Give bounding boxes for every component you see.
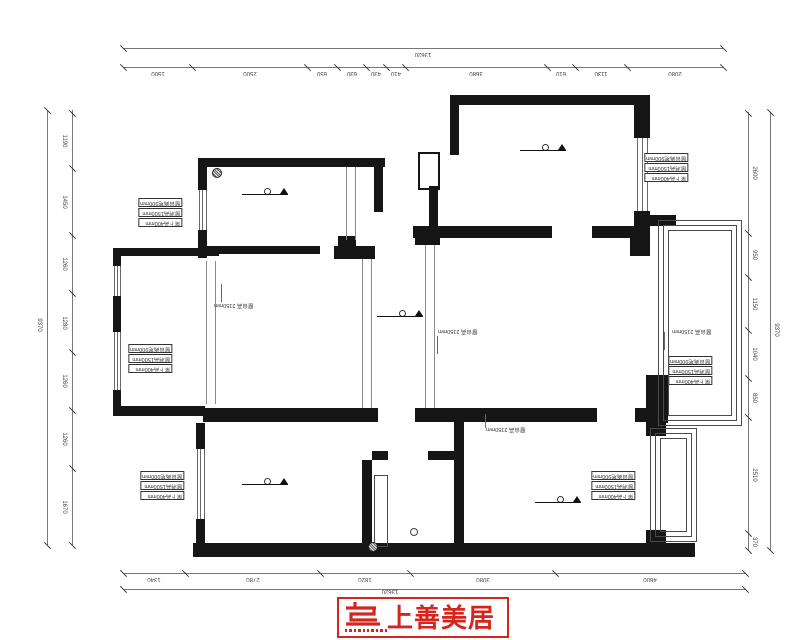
wall [196, 423, 205, 449]
dimension-value: 650 [308, 70, 336, 76]
window-spec-annotation: 窗台离地900mm窗洞高1500mm梁下高400mm [644, 153, 688, 183]
dimension-value: 950 [751, 241, 757, 269]
window [206, 190, 207, 230]
sill-height-annotation: 窗台高 2150mm [486, 426, 525, 434]
wall [415, 408, 597, 422]
wall [415, 228, 440, 245]
window [197, 449, 198, 519]
level-marker [533, 492, 585, 516]
floor-drain-icon [410, 528, 418, 536]
window [114, 332, 115, 390]
leader-line [437, 336, 438, 354]
dimension-value: 4600 [636, 576, 664, 582]
dimension-value: 850 [751, 384, 757, 412]
logo-s-mark-icon [344, 602, 384, 628]
sill-height-annotation: 窗台高 2150mm [438, 328, 477, 336]
dimension-value: 9370 [36, 311, 42, 339]
dimension-value: 3080 [469, 576, 497, 582]
window-spec-annotation: 窗台离地900mm窗洞高1500mm梁下高400mm [591, 471, 635, 501]
wall [454, 420, 464, 553]
company-logo: 上善美居 [337, 597, 509, 638]
window [642, 138, 643, 211]
partition-line [215, 261, 216, 404]
leader-line [485, 414, 486, 428]
partition-line [434, 245, 435, 408]
logo-dotted-row [345, 629, 387, 633]
leader-line [664, 332, 665, 350]
wall [203, 408, 378, 422]
wall [198, 158, 385, 167]
partition-line [355, 167, 356, 240]
dimension-value: 1150 [751, 290, 757, 318]
window [120, 266, 121, 296]
dimension-value: 1130 [587, 70, 615, 76]
dimension-value: 2080 [661, 70, 689, 76]
window [117, 266, 118, 296]
dimension-line [770, 112, 771, 550]
dimension-value: 1040 [751, 340, 757, 368]
wall [113, 296, 121, 332]
dimension-value: 3680 [462, 70, 490, 76]
window-spec-annotation: 窗台离地900mm窗洞高1500mm梁下高400mm [140, 471, 184, 501]
dimension-value: 1820 [351, 576, 379, 582]
dimension-value: 1260 [61, 425, 67, 453]
wall [428, 451, 456, 460]
dimension-value: 370 [751, 528, 757, 556]
dimension-value: 2780 [239, 576, 267, 582]
sill-height-annotation: 窗台高 2150mm [672, 328, 711, 336]
floor-plan-drawing: 1362015002500650630430410368061011302080… [0, 0, 800, 640]
dimension-value: 1500 [144, 70, 172, 76]
balcony-frame [668, 230, 732, 416]
level-line [535, 502, 581, 503]
window [120, 332, 121, 390]
partition-line [346, 167, 347, 240]
dimension-value: 610 [547, 70, 575, 76]
wall [362, 460, 372, 553]
survey-point-icon [368, 542, 378, 552]
wall [113, 248, 121, 266]
dimension-value: 2510 [751, 461, 757, 489]
window [204, 449, 205, 519]
partition-line [206, 261, 207, 404]
window-spec-annotation: 窗台离地900mm窗洞高1500mm梁下高400mm [138, 198, 182, 228]
dimension-line [123, 67, 723, 68]
level-line [242, 194, 288, 195]
wall [193, 543, 695, 557]
dimension-value: 1670 [61, 493, 67, 521]
survey-point-icon [212, 168, 222, 178]
dimension-value: 1190 [61, 127, 67, 155]
level-marker [518, 140, 570, 164]
partition-line [371, 259, 372, 408]
dimension-line [123, 573, 745, 574]
level-line [377, 316, 423, 317]
dimension-value: 410 [382, 70, 410, 76]
window [114, 266, 115, 296]
wall [113, 406, 205, 416]
wall-notch [418, 152, 440, 190]
duct-shaft [374, 475, 388, 547]
window-spec-annotation: 窗台离地900mm窗洞高1500mm梁下高400mm [128, 344, 172, 374]
logo-brand-text: 上善美居 [387, 603, 495, 633]
dimension-value: 13620 [376, 588, 404, 594]
wall [450, 95, 650, 105]
dimension-value: 1260 [61, 367, 67, 395]
window [117, 332, 118, 390]
dimension-value: 9370 [773, 316, 779, 344]
window [637, 138, 638, 211]
sill-height-annotation: 窗台高 2150mm [214, 302, 253, 310]
window-spec-annotation: 窗台离地900mm窗洞高1500mm梁下高400mm [668, 356, 712, 386]
leader-line [221, 284, 222, 302]
window [200, 449, 201, 519]
level-marker [375, 306, 427, 330]
level-line [242, 484, 288, 485]
level-marker [240, 474, 292, 498]
wall [338, 236, 356, 248]
dimension-value: 1260 [61, 250, 67, 278]
partition-line [362, 259, 363, 408]
dimension-line [72, 110, 73, 545]
window [202, 190, 203, 230]
dimension-value: 2500 [236, 70, 264, 76]
dimension-line [123, 589, 745, 590]
wall [198, 158, 207, 190]
dimension-line [123, 48, 723, 49]
wall [450, 95, 459, 155]
dimension-value: 1340 [140, 576, 168, 582]
bay-window-frame [660, 438, 687, 532]
dimension-value: 2600 [751, 159, 757, 187]
level-marker [240, 184, 292, 208]
wall [113, 248, 219, 256]
dimension-line [47, 110, 48, 545]
level-line [520, 150, 566, 151]
dimension-value: 13620 [409, 51, 437, 57]
wall [374, 167, 383, 212]
wall [630, 230, 650, 256]
wall [634, 95, 650, 138]
dimension-value: 1280 [61, 309, 67, 337]
dimension-value: 1450 [61, 188, 67, 216]
window [199, 190, 200, 230]
wall [372, 451, 388, 460]
